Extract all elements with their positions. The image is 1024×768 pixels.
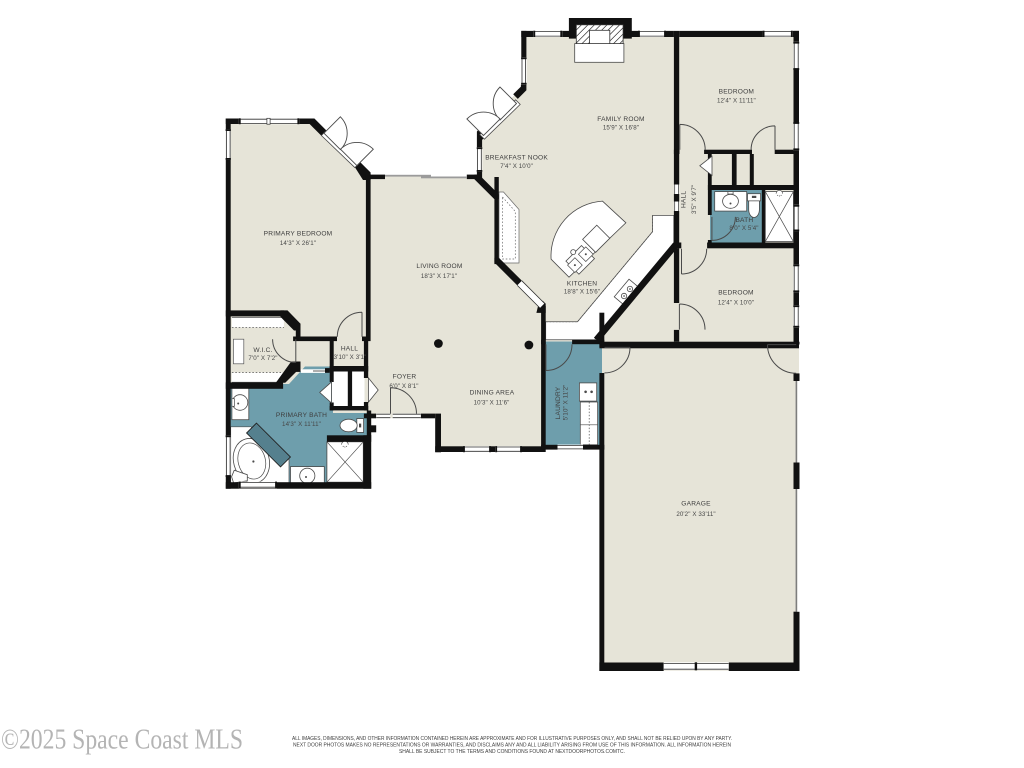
- svg-text:3'10" X 3'1": 3'10" X 3'1": [334, 354, 367, 361]
- svg-text:20'2" X 33'11": 20'2" X 33'11": [676, 511, 715, 518]
- svg-text:FAMILY ROOM: FAMILY ROOM: [597, 116, 644, 123]
- svg-text:HALL: HALL: [681, 191, 688, 208]
- svg-text:GARAGE: GARAGE: [681, 500, 711, 507]
- svg-text:12'4" X 11'11": 12'4" X 11'11": [717, 98, 756, 105]
- svg-text:14'3" X 26'1": 14'3" X 26'1": [280, 240, 316, 247]
- svg-text:BREAKFAST NOOK: BREAKFAST NOOK: [485, 154, 548, 161]
- svg-text:KITCHEN: KITCHEN: [567, 280, 597, 287]
- svg-text:LIVING ROOM: LIVING ROOM: [416, 263, 462, 270]
- svg-text:BATH: BATH: [735, 217, 753, 224]
- svg-text:12'4" X 10'0": 12'4" X 10'0": [718, 299, 754, 306]
- svg-text:ALL IMAGES, DIMENSIONS, AND OT: ALL IMAGES, DIMENSIONS, AND OTHER INFORM…: [292, 736, 732, 742]
- svg-text:PRIMARY BATH: PRIMARY BATH: [276, 412, 327, 419]
- svg-text:14'3" X 11'11": 14'3" X 11'11": [282, 421, 321, 428]
- svg-text:BEDROOM: BEDROOM: [719, 88, 754, 95]
- svg-text:W.I.C.: W.I.C.: [253, 347, 272, 354]
- svg-text:BEDROOM: BEDROOM: [718, 290, 753, 297]
- svg-text:HALL: HALL: [341, 346, 358, 353]
- svg-text:7'4" X 10'0": 7'4" X 10'0": [500, 163, 533, 170]
- svg-text:©2025 Space Coast MLS: ©2025 Space Coast MLS: [1, 724, 243, 756]
- svg-text:SHALL BE SUBJECT TO THE TERMS: SHALL BE SUBJECT TO THE TERMS AND CONDIT…: [399, 749, 625, 755]
- svg-text:10'3" X 11'6": 10'3" X 11'6": [474, 399, 510, 406]
- svg-text:DINING AREA: DINING AREA: [470, 389, 515, 396]
- svg-text:3'5" X 9'7": 3'5" X 9'7": [691, 185, 698, 214]
- svg-text:7'0" X 7'2": 7'0" X 7'2": [248, 355, 277, 362]
- svg-text:18'8" X 15'6": 18'8" X 15'6": [564, 289, 600, 296]
- svg-text:FOYER: FOYER: [393, 373, 417, 380]
- svg-text:5'10" X 11'2": 5'10" X 11'2": [563, 385, 570, 421]
- svg-text:PRIMARY BEDROOM: PRIMARY BEDROOM: [264, 230, 333, 237]
- svg-text:NEXT DOOR PHOTOS MAKES NO REPR: NEXT DOOR PHOTOS MAKES NO REPRESENTATION…: [293, 742, 731, 748]
- svg-text:LAUNDRY: LAUNDRY: [555, 386, 562, 419]
- svg-text:8'0" X 5'4": 8'0" X 5'4": [729, 225, 758, 232]
- svg-text:15'9" X 16'8": 15'9" X 16'8": [603, 124, 639, 131]
- svg-text:18'3" X 17'1": 18'3" X 17'1": [421, 273, 457, 280]
- svg-text:6'0" X 8'1": 6'0" X 8'1": [389, 383, 418, 390]
